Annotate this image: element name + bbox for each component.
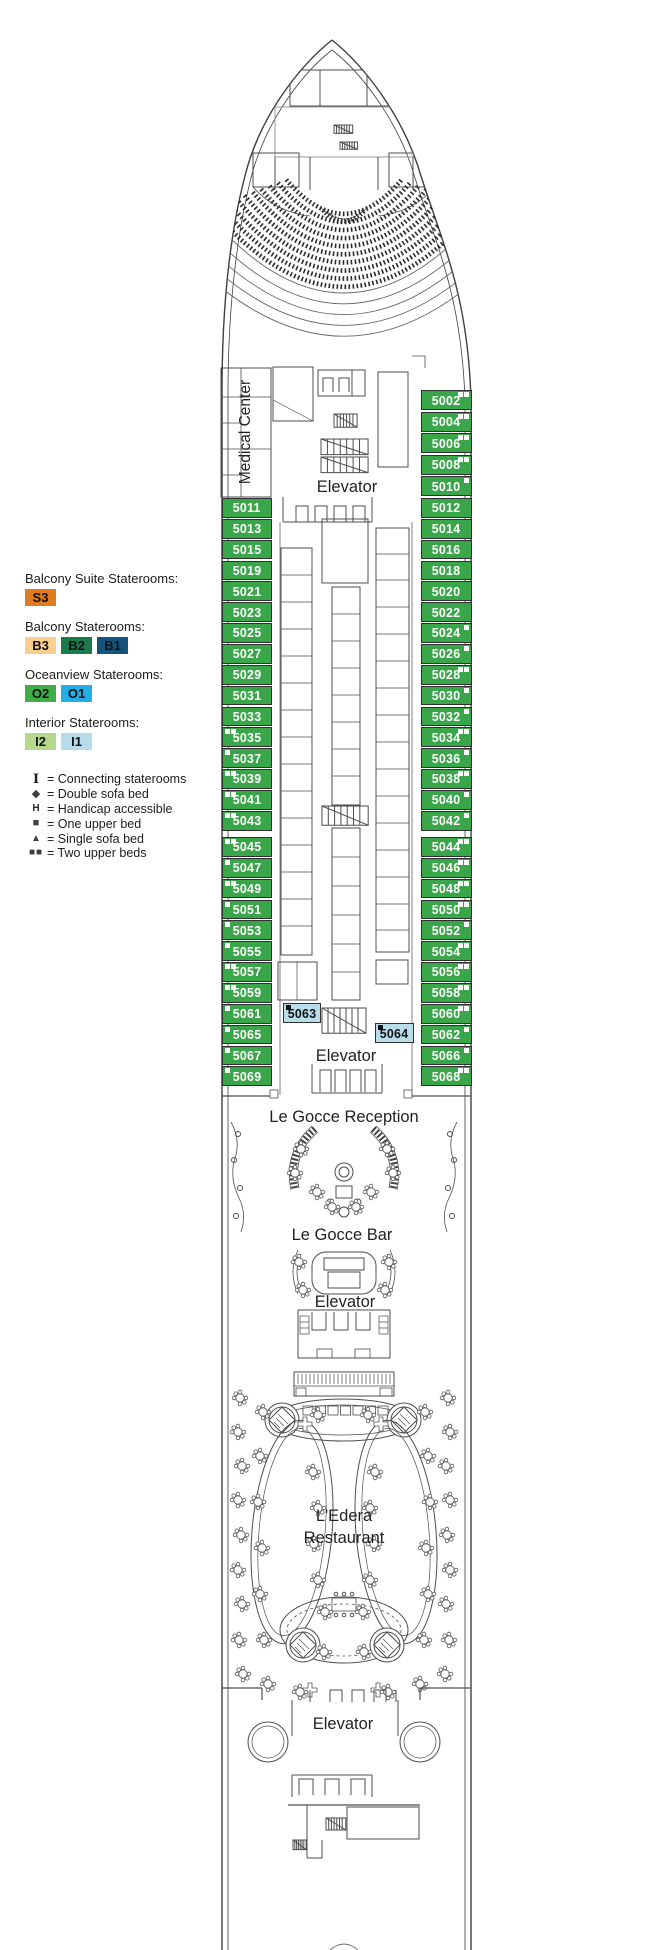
stateroom-number: 5010 (432, 479, 461, 494)
legend-chip-b3: B3 (25, 637, 56, 654)
stateroom-number: 5039 (233, 771, 262, 786)
stateroom-number: 5066 (432, 1048, 461, 1063)
legend-symbol-label: = Double sofa bed (47, 787, 149, 801)
upper-bed-marks (225, 1048, 230, 1053)
legend-section: Oceanview Staterooms:O2O1 (25, 667, 220, 702)
legend: Balcony Suite Staterooms:S3Balcony State… (25, 571, 220, 861)
legend-chip-o2: O2 (25, 685, 56, 702)
stateroom-number: 5035 (233, 730, 262, 745)
bar-label: Le Gocce Bar (292, 1225, 393, 1245)
upper-bed-marks (225, 943, 230, 948)
stateroom-5067[interactable]: 5067 (222, 1046, 272, 1066)
stateroom-5024[interactable]: 5024 (421, 623, 472, 643)
stateroom-5020[interactable]: 5020 (421, 581, 472, 601)
legend-section-title: Interior Staterooms: (25, 715, 220, 730)
upper-bed-marks (225, 1006, 230, 1011)
legend-symbol-label: = One upper bed (47, 817, 141, 831)
stateroom-5031[interactable]: 5031 (222, 686, 272, 706)
upper-bed-marks (464, 750, 469, 755)
stateroom-5035[interactable]: 5035 (222, 727, 272, 747)
stateroom-number: 5050 (432, 902, 461, 917)
stateroom-number: 5028 (432, 667, 461, 682)
upper-bed-marks (464, 625, 469, 630)
stateroom-5061[interactable]: 5061 (222, 1004, 272, 1024)
stateroom-number: 5055 (233, 944, 262, 959)
legend-symbol-row: ◆= Double sofa bed (25, 787, 220, 802)
stateroom-5051[interactable]: 5051 (222, 900, 272, 920)
legend-symbols: I= Connecting staterooms◆= Double sofa b… (25, 772, 220, 861)
stateroom-number: 5004 (432, 414, 461, 429)
legend-chip-b1: B1 (97, 637, 128, 654)
stateroom-number: 5013 (233, 521, 262, 536)
legend-symbol-label: = Two upper beds (47, 846, 147, 860)
legend-symbol-label: = Connecting staterooms (47, 772, 186, 786)
stateroom-5026[interactable]: 5026 (421, 644, 472, 664)
upper-bed-marks (464, 813, 469, 818)
stateroom-number: 5019 (233, 563, 262, 578)
upper-bed-marks (225, 1027, 230, 1032)
legend-symbol-row: ■= One upper bed (25, 816, 220, 831)
stateroom-number: 5068 (432, 1069, 461, 1084)
stateroom-5060[interactable]: 5060 (421, 1004, 472, 1024)
stateroom-5065[interactable]: 5065 (222, 1025, 272, 1045)
stateroom-5045[interactable]: 5045 (222, 837, 272, 857)
stateroom-number: 5058 (432, 985, 461, 1000)
bar-area (291, 1250, 397, 1298)
stateroom-5030[interactable]: 5030 (421, 686, 472, 706)
stateroom-number: 5037 (233, 751, 262, 766)
stateroom-5056[interactable]: 5056 (421, 962, 472, 982)
elevator-label-1: Elevator (317, 477, 378, 497)
stateroom-5048[interactable]: 5048 (421, 879, 472, 899)
upper-bed-marks (225, 860, 230, 865)
legend-section-title: Oceanview Staterooms: (25, 667, 220, 682)
reception-area (231, 1122, 457, 1232)
stateroom-number: 5006 (432, 436, 461, 451)
stateroom-number: 5067 (233, 1048, 262, 1063)
legend-symbol-row: I= Connecting staterooms (25, 772, 220, 787)
stateroom-5046[interactable]: 5046 (421, 858, 472, 878)
legend-section: Interior Staterooms:I2I1 (25, 715, 220, 750)
deck-plan: Balcony Suite Staterooms:S3Balcony State… (0, 0, 650, 1950)
legend-sections: Balcony Suite Staterooms:S3Balcony State… (25, 571, 220, 750)
stateroom-number: 5012 (432, 500, 461, 515)
h-symbol-icon: H (25, 804, 47, 814)
stateroom-5013[interactable]: 5013 (222, 519, 272, 539)
upper-bed-marks (225, 922, 230, 927)
stateroom-5059[interactable]: 5059 (222, 983, 272, 1003)
upper-bed-marks (225, 902, 230, 907)
stateroom-5027[interactable]: 5027 (222, 644, 272, 664)
stateroom-number: 5064 (380, 1026, 409, 1041)
stateroom-5049[interactable]: 5049 (222, 879, 272, 899)
stateroom-5057[interactable]: 5057 (222, 962, 272, 982)
stateroom-5042[interactable]: 5042 (421, 811, 472, 831)
upper-bed-marks (225, 750, 230, 755)
elevator-bank-4 (292, 1775, 372, 1797)
stateroom-number: 5026 (432, 646, 461, 661)
stateroom-5038[interactable]: 5038 (421, 769, 472, 789)
legend-symbol-label: = Single sofa bed (47, 832, 144, 846)
stateroom-number: 5048 (432, 881, 461, 896)
stateroom-number: 5042 (432, 813, 461, 828)
stateroom-5054[interactable]: 5054 (421, 941, 472, 961)
upper-bed-marks (464, 709, 469, 714)
restaurant-area (230, 1390, 458, 1762)
stateroom-number: 5038 (432, 771, 461, 786)
stateroom-5040[interactable]: 5040 (421, 790, 472, 810)
legend-symbol-row: H= Handicap accessible (25, 802, 220, 817)
stateroom-number: 5015 (233, 542, 262, 557)
stateroom-5069[interactable]: 5069 (222, 1066, 272, 1086)
stateroom-number: 5049 (233, 881, 262, 896)
upper-bed-marks (464, 1027, 469, 1032)
stateroom-number: 5054 (432, 944, 461, 959)
legend-symbol-label: = Handicap accessible (47, 802, 172, 816)
stateroom-number: 5033 (233, 709, 262, 724)
stateroom-number: 5034 (432, 730, 461, 745)
stateroom-5036[interactable]: 5036 (421, 748, 472, 768)
stateroom-number: 5029 (233, 667, 262, 682)
stateroom-5052[interactable]: 5052 (421, 920, 472, 940)
legend-section-title: Balcony Suite Staterooms: (25, 571, 220, 586)
stateroom-number: 5023 (233, 605, 262, 620)
stateroom-number: 5061 (233, 1006, 262, 1021)
medical-center-label: Medical Center (237, 380, 255, 484)
stateroom-5022[interactable]: 5022 (421, 602, 472, 622)
stateroom-number: 5008 (432, 457, 461, 472)
stateroom-number: 5052 (432, 923, 461, 938)
upper-bed-marks (464, 792, 469, 797)
stateroom-5058[interactable]: 5058 (421, 983, 472, 1003)
stateroom-number: 5053 (233, 923, 262, 938)
stateroom-5011[interactable]: 5011 (222, 498, 272, 518)
stateroom-5064[interactable]: 5064 (375, 1023, 414, 1043)
legend-chip-i2: I2 (25, 733, 56, 750)
legend-symbol-row: ■■= Two upper beds (25, 846, 220, 861)
stateroom-number: 5056 (432, 964, 461, 979)
stateroom-5039[interactable]: 5039 (222, 769, 272, 789)
stateroom-number: 5002 (432, 393, 461, 408)
elevator-bank-3 (294, 1310, 394, 1396)
stateroom-5043[interactable]: 5043 (222, 811, 272, 831)
elevator-label-4: Elevator (313, 1714, 374, 1734)
stateroom-5012[interactable]: 5012 (421, 498, 472, 518)
stateroom-5010[interactable]: 5010 (421, 476, 472, 496)
upper-bed-marks (464, 646, 469, 651)
stateroom-number: 5018 (432, 563, 461, 578)
theater-area (160, 70, 528, 336)
stateroom-number: 5057 (233, 964, 262, 979)
stateroom-number: 5031 (233, 688, 262, 703)
stateroom-number: 5024 (432, 625, 461, 640)
stateroom-5028[interactable]: 5028 (421, 665, 472, 685)
stateroom-number: 5062 (432, 1027, 461, 1042)
stateroom-5037[interactable]: 5037 (222, 748, 272, 768)
elevator-label-2: Elevator (316, 1046, 377, 1066)
stateroom-5068[interactable]: 5068 (421, 1066, 472, 1086)
stateroom-5014[interactable]: 5014 (421, 519, 472, 539)
stateroom-5018[interactable]: 5018 (421, 561, 472, 581)
stateroom-5053[interactable]: 5053 (222, 920, 272, 940)
stateroom-number: 5065 (233, 1027, 262, 1042)
legend-chip-b2: B2 (61, 637, 92, 654)
legend-symbol-row: ▲= Single sofa bed (25, 831, 220, 846)
legend-section: Balcony Suite Staterooms:S3 (25, 571, 220, 606)
stateroom-number: 5021 (233, 584, 262, 599)
stateroom-number: 5036 (432, 751, 461, 766)
stateroom-5023[interactable]: 5023 (222, 602, 272, 622)
stateroom-5044[interactable]: 5044 (421, 837, 472, 857)
stateroom-number: 5025 (233, 625, 262, 640)
stateroom-5066[interactable]: 5066 (421, 1046, 472, 1066)
stateroom-number: 5041 (233, 792, 262, 807)
upper-bed-marks (464, 1048, 469, 1053)
stateroom-5033[interactable]: 5033 (222, 707, 272, 727)
theater-seating (211, 180, 477, 287)
stateroom-5029[interactable]: 5029 (222, 665, 272, 685)
stateroom-number: 5011 (233, 500, 261, 515)
stateroom-5063[interactable]: 5063 (283, 1003, 321, 1023)
square-symbol-icon: ■ (25, 818, 47, 829)
stateroom-5055[interactable]: 5055 (222, 941, 272, 961)
stateroom-5008[interactable]: 5008 (421, 455, 472, 475)
stateroom-number: 5044 (432, 839, 461, 854)
restaurant-label: L'Edera Restaurant (304, 1505, 385, 1549)
stateroom-number: 5027 (233, 646, 262, 661)
stateroom-number: 5046 (432, 860, 461, 875)
legend-chip-o1: O1 (61, 685, 92, 702)
stateroom-number: 5051 (233, 902, 262, 917)
two-symbol-icon: ■■ (25, 848, 47, 858)
stateroom-5002[interactable]: 5002 (421, 390, 472, 410)
stateroom-5021[interactable]: 5021 (222, 581, 272, 601)
stateroom-5004[interactable]: 5004 (421, 412, 472, 432)
elevator-bank-1 (283, 497, 372, 522)
stateroom-number: 5016 (432, 542, 461, 557)
stateroom-5025[interactable]: 5025 (222, 623, 272, 643)
stateroom-number: 5063 (288, 1006, 317, 1021)
upper-bed-marks (225, 1068, 230, 1073)
stateroom-5016[interactable]: 5016 (421, 540, 472, 560)
stateroom-number: 5014 (432, 521, 461, 536)
stateroom-number: 5020 (432, 584, 461, 599)
stateroom-number: 5045 (233, 839, 262, 854)
stateroom-5041[interactable]: 5041 (222, 790, 272, 810)
stateroom-number: 5047 (233, 860, 262, 875)
upper-bed-marks (464, 478, 469, 483)
legend-section: Balcony Staterooms:B3B2B1 (25, 619, 220, 654)
reception-label: Le Gocce Reception (269, 1107, 418, 1127)
stateroom-number: 5030 (432, 688, 461, 703)
ibeam-symbol-icon: I (25, 773, 47, 786)
stateroom-5062[interactable]: 5062 (421, 1025, 472, 1045)
elevator-label-3: Elevator (315, 1292, 376, 1312)
legend-chip-s3: S3 (25, 589, 56, 606)
stateroom-number: 5060 (432, 1006, 461, 1021)
stateroom-number: 5022 (432, 605, 461, 620)
stateroom-5034[interactable]: 5034 (421, 727, 472, 747)
upper-bed-marks (464, 688, 469, 693)
upper-bed-marks (464, 922, 469, 927)
stateroom-number: 5069 (233, 1069, 262, 1084)
stateroom-5050[interactable]: 5050 (421, 900, 472, 920)
stateroom-number: 5032 (432, 709, 461, 724)
stateroom-number: 5040 (432, 792, 461, 807)
diamond-symbol-icon: ◆ (25, 789, 47, 800)
legend-chip-i1: I1 (61, 733, 92, 750)
stateroom-5032[interactable]: 5032 (421, 707, 472, 727)
deck-plan-drawing (0, 0, 650, 1950)
stateroom-number: 5059 (233, 985, 262, 1000)
stateroom-5006[interactable]: 5006 (421, 433, 472, 453)
stateroom-5019[interactable]: 5019 (222, 561, 272, 581)
stateroom-5047[interactable]: 5047 (222, 858, 272, 878)
legend-section-title: Balcony Staterooms: (25, 619, 220, 634)
stateroom-5015[interactable]: 5015 (222, 540, 272, 560)
stateroom-number: 5043 (233, 813, 262, 828)
triangle-symbol-icon: ▲ (25, 834, 47, 844)
